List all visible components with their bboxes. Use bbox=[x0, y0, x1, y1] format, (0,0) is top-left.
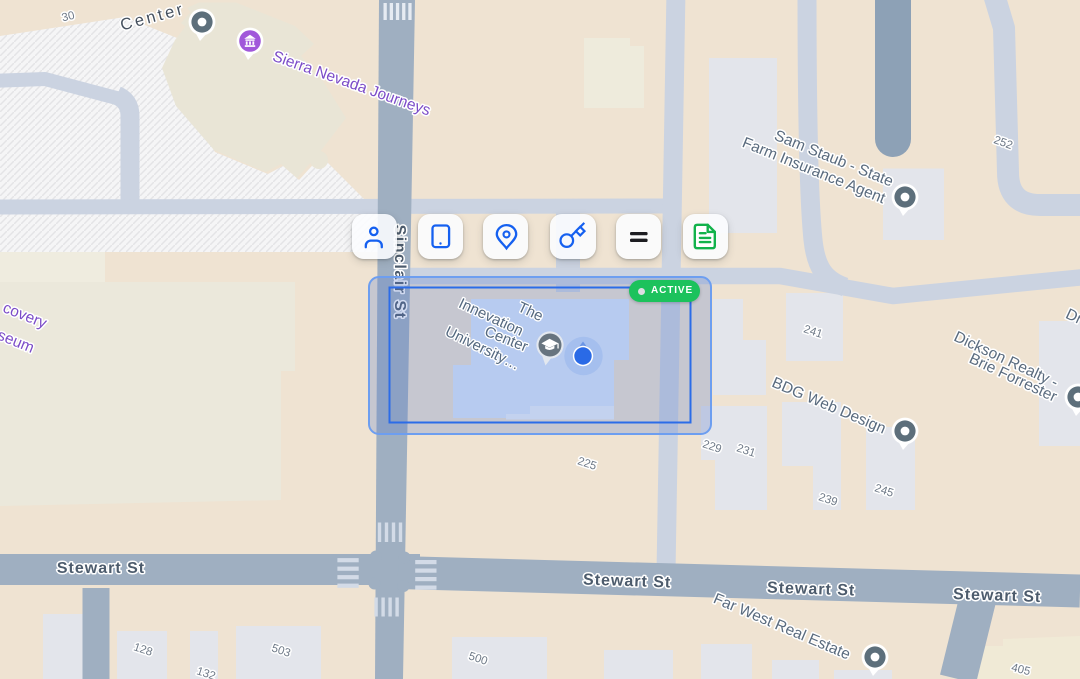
svg-text:Stewart St: Stewart St bbox=[57, 560, 145, 577]
svg-text:225: 225 bbox=[576, 455, 598, 472]
svg-text:Stewart St: Stewart St bbox=[583, 571, 672, 591]
svg-text:Stewart St: Stewart St bbox=[767, 579, 856, 599]
svg-text:30: 30 bbox=[61, 10, 76, 25]
svg-text:Stewart St: Stewart St bbox=[953, 586, 1042, 606]
